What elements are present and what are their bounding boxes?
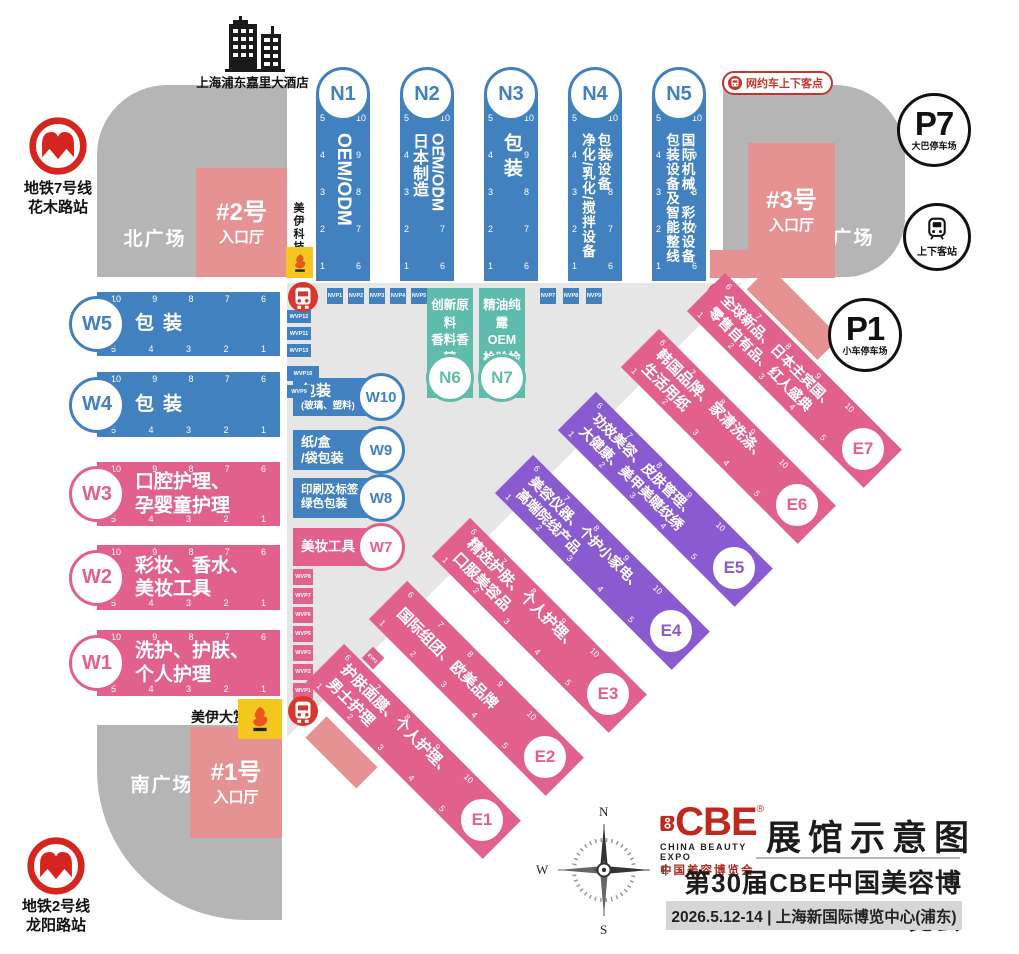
- compass-north-label: N: [599, 804, 608, 820]
- hall-w2-badge: W2: [69, 550, 125, 606]
- hall-w8[interactable]: 印刷及标签、绿色包装 W8: [293, 478, 379, 518]
- entrance-hall-1[interactable]: #1号 入口厅: [190, 727, 282, 838]
- berth-number: 10: [462, 772, 476, 786]
- entrance-hall-3-stub: [710, 250, 750, 278]
- wvp-booth[interactable]: WVP9: [287, 385, 311, 398]
- parking-p1-code: P1: [846, 313, 884, 344]
- wvp-booth[interactable]: WVP13: [287, 344, 311, 357]
- metro-line7-line: 地铁7号线: [12, 180, 104, 199]
- berth-number: 10: [525, 709, 539, 723]
- berth-number: 5: [656, 113, 661, 123]
- metro-logo-icon: [26, 836, 86, 896]
- wvp-booth[interactable]: WVP5: [293, 626, 313, 642]
- date-venue-bar: 2026.5.12-14 | 上海新国际博览中心(浦东): [666, 901, 962, 930]
- berth-number: 3: [186, 425, 191, 435]
- berth-number: 5: [500, 740, 510, 750]
- hotel-icon: [215, 16, 287, 72]
- rideshare-pickup-label: 网约车上下客点: [746, 75, 823, 91]
- berth-number: 3: [439, 679, 449, 689]
- berth-number: 9: [495, 679, 505, 689]
- hall-e4-badge: E4: [647, 607, 695, 655]
- wvp-booth[interactable]: WVP11: [287, 327, 311, 340]
- wvp-booth[interactable]: WVP6: [293, 607, 313, 623]
- berth-number: 1: [261, 514, 266, 524]
- bus-icon: [728, 76, 742, 90]
- hall-n7[interactable]: 精油纯露OEM检验检测 N7: [479, 288, 525, 398]
- north-plaza-label: 北广场: [110, 224, 200, 251]
- parking-p7-code: P7: [915, 108, 953, 139]
- hall-w3-badge: W3: [69, 466, 125, 522]
- hall-w3[interactable]: 109876 54321 口腔护理、孕婴童护理 W3: [97, 462, 280, 526]
- hall-w9[interactable]: 纸/盒/袋包装 W9: [293, 430, 379, 470]
- berth-number: 6: [261, 547, 266, 557]
- entrance-hall-3[interactable]: #3号 入口厅: [748, 143, 835, 278]
- berth-number: 3: [186, 344, 191, 354]
- compass-west-label: W: [536, 862, 548, 878]
- hall-e7-badge: E7: [839, 425, 887, 473]
- meiyi-logo-icon: [249, 704, 271, 734]
- nvp-booth[interactable]: NVP1: [327, 288, 343, 304]
- berth-number: 7: [225, 294, 230, 304]
- berth-number: 2: [223, 344, 228, 354]
- wvp-booth[interactable]: WVP10: [287, 366, 319, 381]
- hall-w7-badge: W7: [357, 523, 405, 571]
- berth-number: 10: [588, 646, 602, 660]
- meiyi-logo-icon: [292, 252, 308, 274]
- berth-number: 8: [188, 374, 193, 384]
- hall-n5[interactable]: 54321 109876 国际机械、彩妆设备包装设备及智能整线 N5: [652, 95, 706, 281]
- entrance-hall-1-label: #1号 入口厅: [190, 727, 282, 838]
- berth-number: 9: [152, 374, 157, 384]
- hall-n4-badge: N4: [568, 67, 622, 121]
- berth-number: 1: [261, 425, 266, 435]
- entrance-hall-2-label: #2号 入口厅: [196, 168, 287, 277]
- passenger-drop-label: 上下客站: [917, 243, 957, 258]
- bus-stop-icon: [288, 282, 318, 312]
- berth-number: 2: [223, 425, 228, 435]
- nvp-booth-row-right: NVP7NVP8NVP9: [540, 288, 602, 304]
- hall-w4-label: 包装: [135, 393, 191, 417]
- hall-w2[interactable]: 109876 54321 彩妆、香水、美妆工具 W2: [97, 545, 280, 610]
- berth-number: 1: [377, 618, 387, 628]
- expo-floor-map: 北广场 东广场 南广场 #2号 入口厅 #3号 入口厅 #1号 入口厅 美伊科技…: [0, 0, 1019, 954]
- hall-w1-badge: W1: [69, 635, 125, 691]
- berth-numbers-top: 109876: [111, 294, 266, 304]
- berth-numbers-top: 109876: [111, 374, 266, 384]
- nvp-booth[interactable]: NVP5: [411, 288, 427, 304]
- nvp-booth-row-left: NVP1NVP2NVP3NVP4NVP5: [327, 288, 427, 304]
- hall-e6-badge: E6: [773, 481, 821, 529]
- metro-line7-stop: 花木路站: [12, 199, 104, 218]
- parking-p7[interactable]: P7 大巴停车场: [897, 93, 971, 167]
- hall-w5-label: 包装: [135, 312, 191, 336]
- rideshare-pickup-point[interactable]: 网约车上下客点: [722, 71, 833, 95]
- passenger-drop-station[interactable]: 上下客站: [903, 203, 971, 271]
- berth-number: 5: [752, 488, 762, 498]
- hall-n3-label: 包装: [500, 133, 522, 273]
- wvp-booth[interactable]: WVP8: [293, 569, 313, 585]
- hall-e2-label: 国际组团、欧美品牌: [392, 604, 501, 713]
- entrance-hall-3-label: #3号 入口厅: [748, 143, 835, 278]
- berth-number: 10: [777, 457, 791, 471]
- berth-number: 6: [261, 374, 266, 384]
- berth-number: 10: [843, 401, 857, 415]
- cbe-logo-en: CHINA BEAUTY EXPO: [660, 842, 764, 862]
- hall-n5-label: 国际机械、彩妆设备包装设备及智能整线: [663, 133, 694, 273]
- bus-stop-icon: [288, 696, 318, 726]
- hall-e1-badge: E1: [458, 796, 506, 844]
- hall-n6[interactable]: 创新原料香料香精 N6: [427, 288, 473, 398]
- cbe-logo-icon: [660, 804, 675, 842]
- shuttle-icon: [925, 217, 949, 241]
- hall-w8-badge: W8: [357, 474, 405, 522]
- title-divider: [756, 857, 960, 859]
- metro-line2-station[interactable]: 地铁2号线 龙阳路站: [10, 898, 102, 936]
- berth-number: 7: [435, 619, 445, 629]
- hall-w10-badge: W10: [357, 373, 405, 421]
- berth-number: 1: [261, 344, 266, 354]
- hall-n3-badge: N3: [484, 67, 538, 121]
- berth-numbers-bottom: 54321: [111, 344, 266, 354]
- hall-w2-label: 彩妆、香水、美妆工具: [135, 554, 249, 602]
- nvp-booth[interactable]: NVP8: [563, 288, 579, 304]
- berth-number: 5: [404, 113, 409, 123]
- hall-e5-badge: E5: [710, 544, 758, 592]
- hall-w1-label: 洗护、护肤、个人护理: [135, 639, 249, 687]
- hall-n4-label: 包装设备净化/乳化/搅拌设备: [579, 133, 610, 273]
- hotel-label: 上海浦东嘉里大酒店: [190, 72, 315, 91]
- compass-south-label: S: [600, 922, 607, 938]
- berth-number: 5: [437, 803, 447, 813]
- berth-number: 8: [188, 294, 193, 304]
- wvp-booth-column-upper: WVP12WVP11WVP13WVP10WVP9: [287, 310, 319, 398]
- hall-n2[interactable]: 54321 109876 OEM/ODM日本制造 N2: [400, 95, 454, 281]
- parking-p7-label: 大巴停车场: [911, 139, 956, 152]
- berth-number: 6: [261, 294, 266, 304]
- hall-e3-badge: E3: [584, 670, 632, 718]
- parking-p1-label: 小车停车场: [842, 344, 887, 357]
- hall-n4[interactable]: 54321 109876 包装设备净化/乳化/搅拌设备 N4: [568, 95, 622, 281]
- berth-number: 8: [465, 649, 475, 659]
- wvp-booth[interactable]: WVP3: [293, 645, 313, 661]
- meiyi-tech-booth[interactable]: [286, 247, 313, 278]
- metro-line7-station[interactable]: 地铁7号线 花木路站: [12, 180, 104, 218]
- berth-number: 2: [408, 648, 418, 658]
- entrance-hall-2[interactable]: #2号 入口厅: [196, 168, 287, 277]
- metro-line2-line: 地铁2号线: [10, 898, 102, 917]
- hall-n7-badge: N7: [478, 354, 526, 402]
- metro-logo-icon: [28, 116, 88, 176]
- hall-n6-badge: N6: [426, 354, 474, 402]
- parking-p1[interactable]: P1 小车停车场: [828, 298, 902, 372]
- hall-n1-badge: N1: [316, 67, 370, 121]
- hall-n1-label: OEM/ODM: [332, 133, 354, 273]
- berth-number: 5: [818, 432, 828, 442]
- berth-number: 5: [488, 113, 493, 123]
- nvp-booth[interactable]: NVP4: [390, 288, 406, 304]
- hall-n2-badge: N2: [400, 67, 454, 121]
- compass-rose: [552, 818, 656, 922]
- hall-w3-label: 口腔护理、孕婴童护理: [135, 470, 230, 518]
- nvp-booth[interactable]: NVP9: [586, 288, 602, 304]
- berth-numbers-bottom: 54321: [111, 425, 266, 435]
- map-title: 展馆示意图: [766, 810, 976, 861]
- hall-n5-badge: N5: [652, 67, 706, 121]
- meiyi-award-booth[interactable]: [238, 699, 282, 739]
- berth-number: 10: [651, 583, 665, 597]
- nvp-booth[interactable]: NVP3: [369, 288, 385, 304]
- cbe-reg-mark: ®: [757, 804, 764, 815]
- hall-w9-badge: W9: [357, 426, 405, 474]
- berth-number: 5: [320, 113, 325, 123]
- berth-number: 10: [714, 520, 728, 534]
- berth-number: 5: [563, 677, 573, 687]
- hall-w1[interactable]: 109876 54321 洗护、护肤、个人护理 W1: [97, 630, 280, 696]
- berth-number: 9: [152, 294, 157, 304]
- berth-number: 4: [148, 425, 153, 435]
- hall-w7[interactable]: 美妆工具 W7: [293, 528, 379, 566]
- berth-number: 4: [148, 344, 153, 354]
- berth-number: 4: [469, 710, 479, 720]
- hall-n2-label: OEM/ODM日本制造: [409, 133, 446, 273]
- berth-number: 1: [261, 684, 266, 694]
- hall-w4[interactable]: 109876 54321 包装 W4: [97, 372, 280, 437]
- berth-number: 5: [572, 113, 577, 123]
- berth-number: 6: [261, 464, 266, 474]
- berth-number: 5: [626, 614, 636, 624]
- hall-w5-badge: W5: [69, 296, 125, 352]
- berth-number: 6: [406, 589, 416, 599]
- hall-n3[interactable]: 54321 109876 包装 N3: [484, 95, 538, 281]
- berth-number: 5: [689, 551, 699, 561]
- date-venue-text: 2026.5.12-14 | 上海新国际博览中心(浦东): [671, 905, 956, 927]
- wvp-booth[interactable]: WVP7: [293, 588, 313, 604]
- berth-number: 7: [225, 374, 230, 384]
- hall-w5[interactable]: 109876 54321 包装 W5: [97, 292, 280, 356]
- hall-n1[interactable]: 54321 109876 OEM/ODM N1: [316, 95, 370, 281]
- metro-line2-stop: 龙阳路站: [10, 917, 102, 936]
- berth-number: 6: [261, 632, 266, 642]
- hall-w4-badge: W4: [69, 377, 125, 433]
- nvp-booth[interactable]: NVP2: [348, 288, 364, 304]
- berth-number: 1: [261, 598, 266, 608]
- hall-e2-badge: E2: [521, 733, 569, 781]
- hall-w9-label: 纸/盒/袋包装: [301, 434, 344, 465]
- cbe-brand-text: CBE: [675, 804, 756, 840]
- hall-w7-label: 美妆工具: [301, 539, 355, 555]
- nvp-booth[interactable]: NVP7: [540, 288, 556, 304]
- evp-booth-label: EVP3: [367, 652, 379, 664]
